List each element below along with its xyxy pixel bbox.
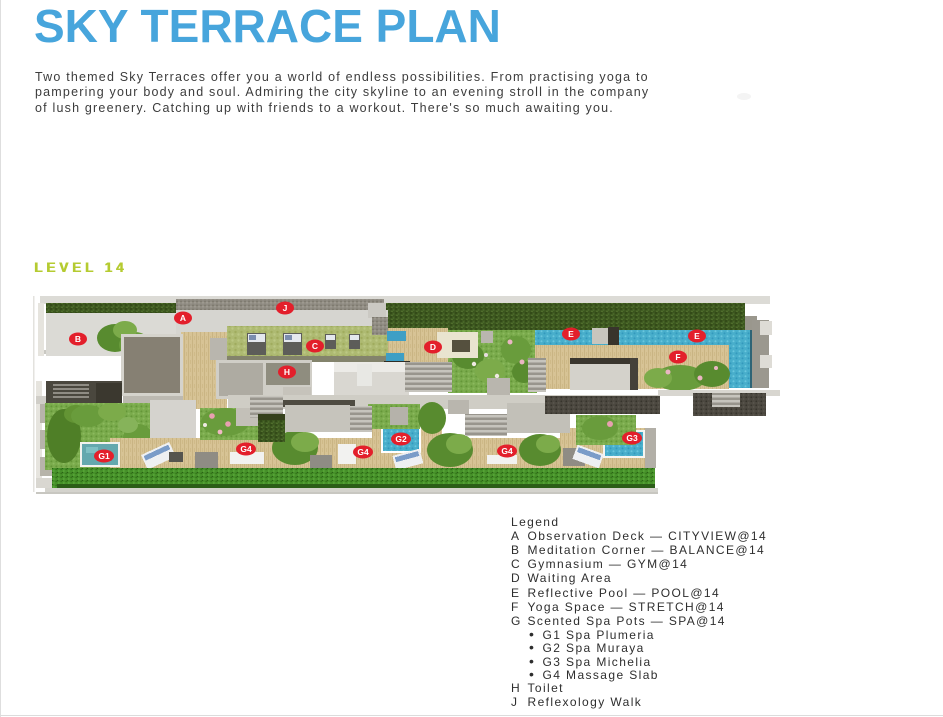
svg-text:H: H (284, 367, 290, 377)
svg-text:G1: G1 (98, 451, 110, 461)
svg-text:G4: G4 (240, 444, 252, 454)
svg-text:E: E (694, 331, 700, 341)
svg-text:E: E (568, 329, 574, 339)
svg-text:G4: G4 (357, 447, 369, 457)
svg-text:G4: G4 (501, 446, 513, 456)
svg-text:J: J (283, 303, 288, 313)
svg-text:F: F (675, 352, 680, 362)
svg-text:G3: G3 (626, 433, 638, 443)
svg-text:B: B (75, 334, 81, 344)
svg-text:C: C (312, 341, 318, 351)
svg-text:D: D (430, 342, 436, 352)
svg-text:A: A (180, 313, 186, 323)
svg-text:G2: G2 (395, 434, 407, 444)
